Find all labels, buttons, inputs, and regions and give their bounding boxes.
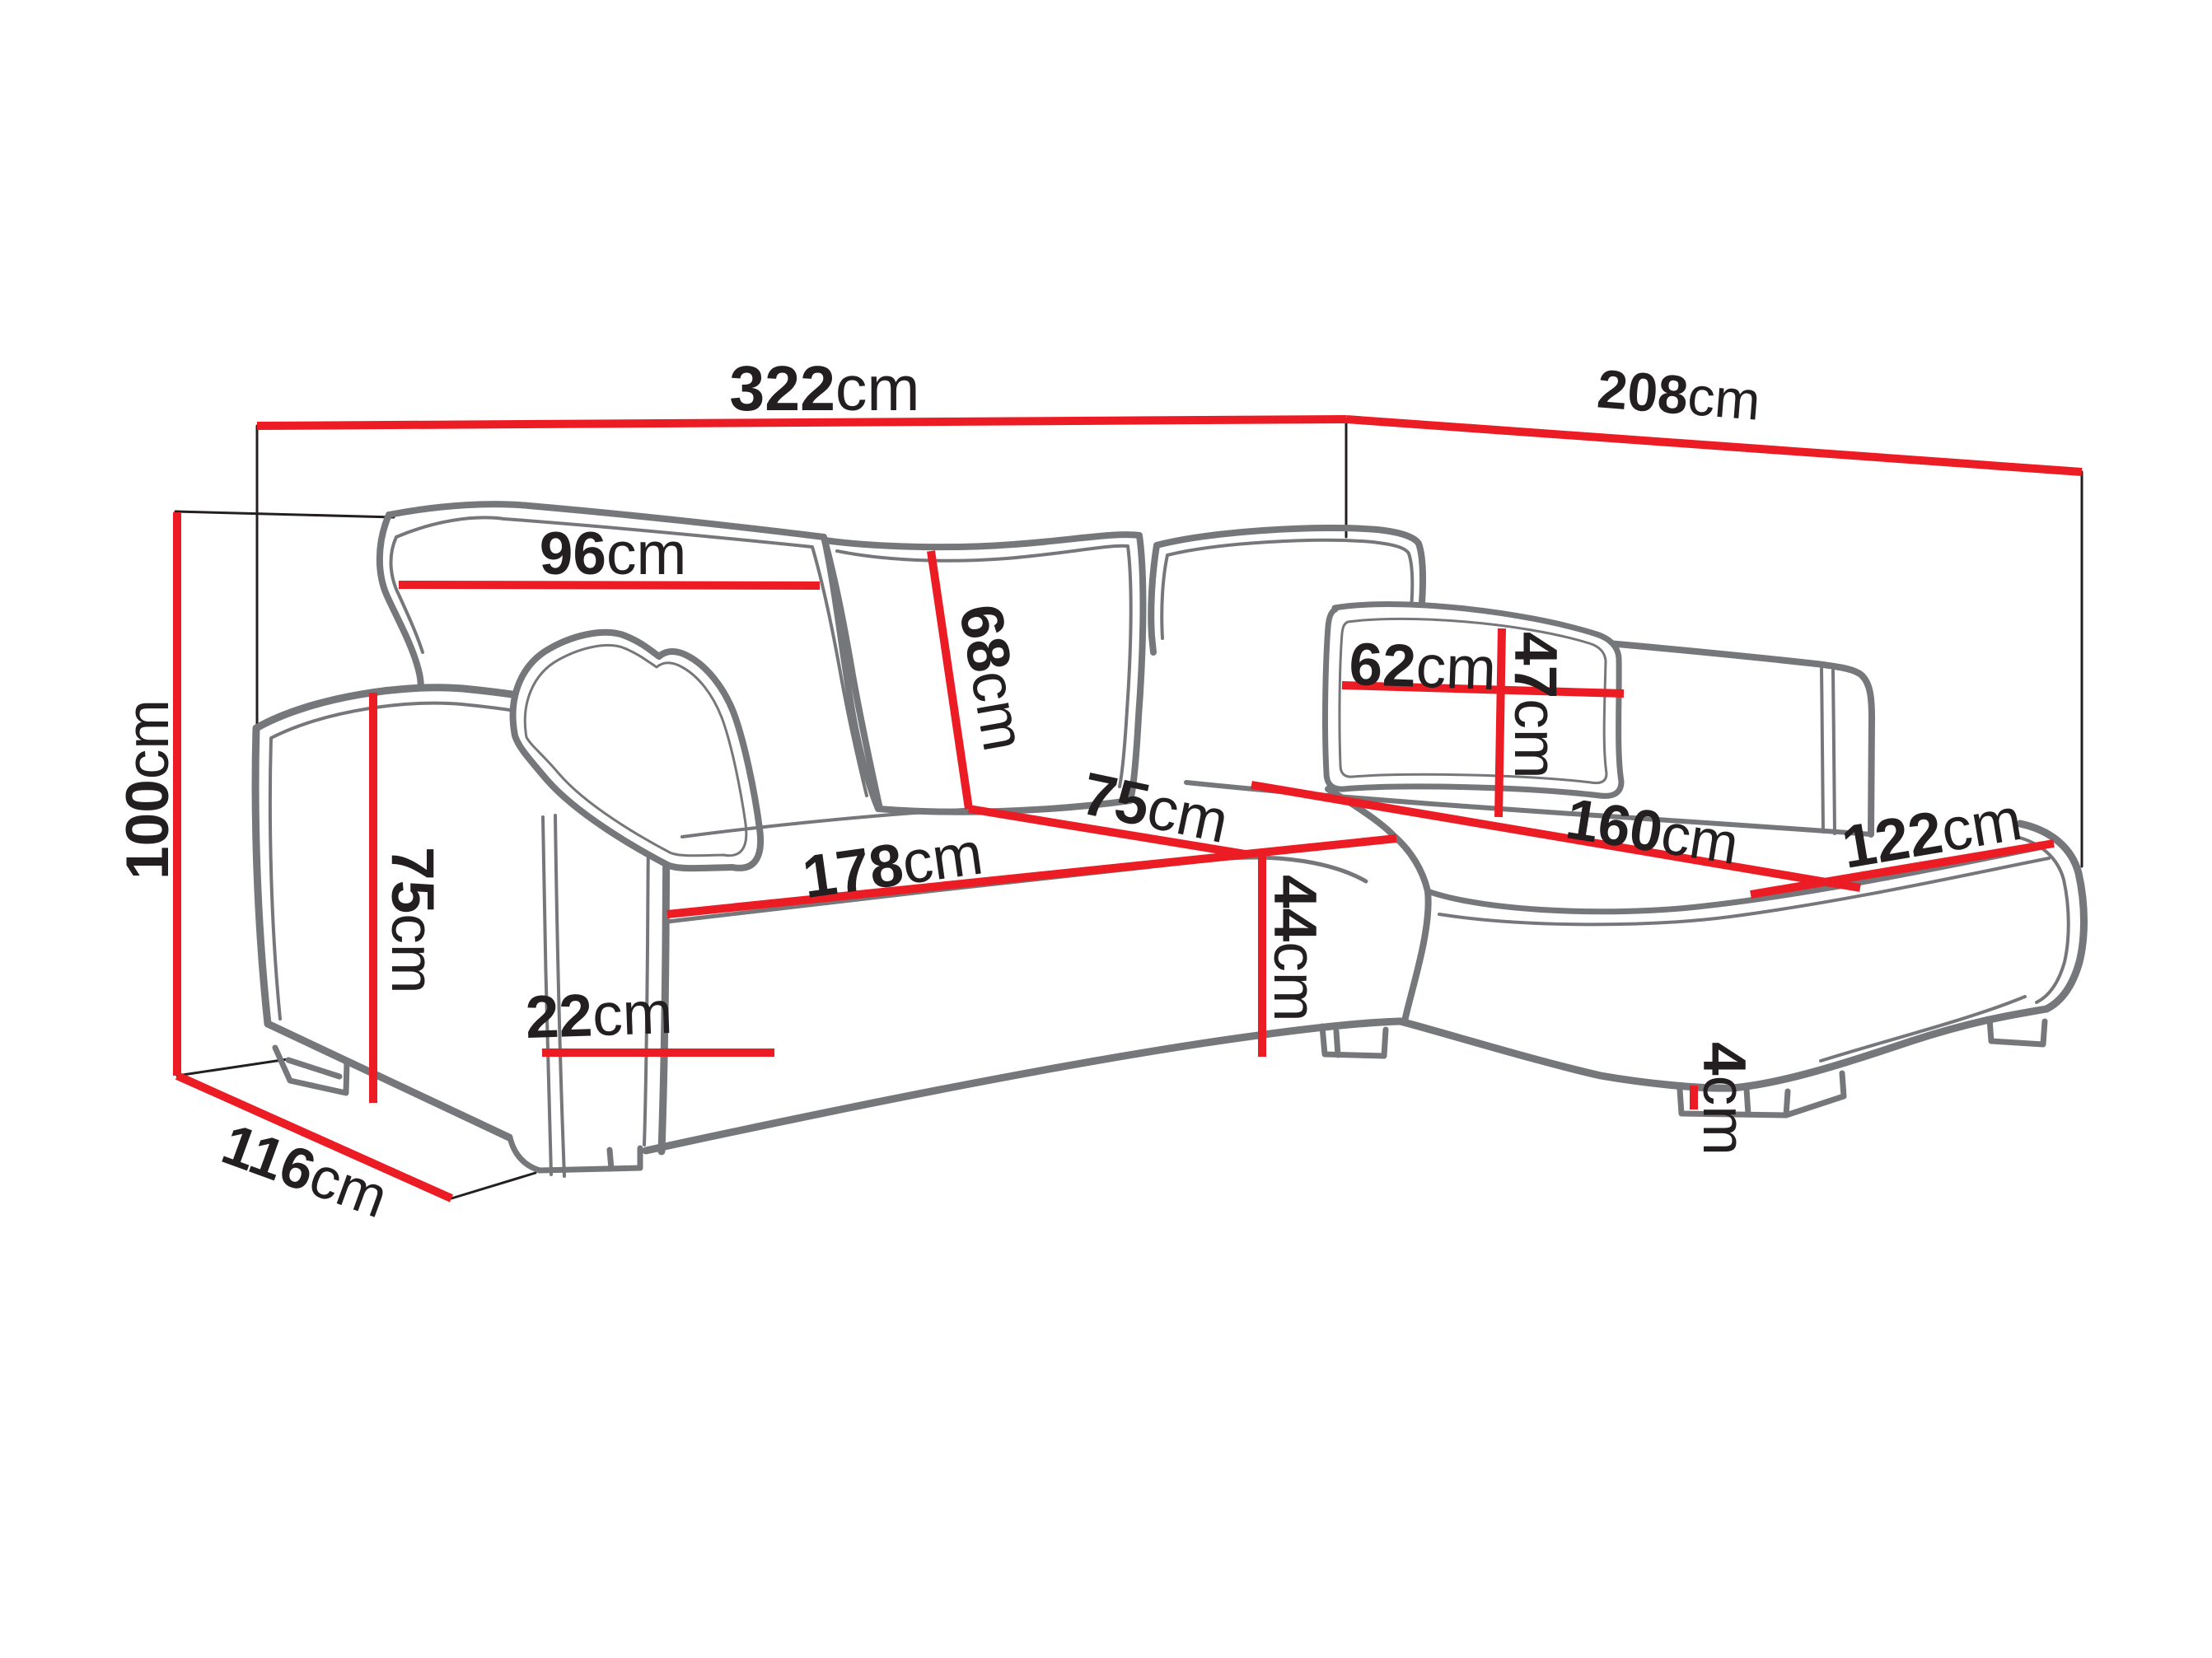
- svg-text:22cm: 22cm: [525, 979, 674, 1051]
- svg-text:96cm: 96cm: [540, 521, 687, 587]
- svg-text:44cm: 44cm: [1261, 875, 1328, 1022]
- svg-text:4cm: 4cm: [1691, 1042, 1757, 1156]
- svg-text:322cm: 322cm: [729, 353, 919, 424]
- svg-text:100cm: 100cm: [115, 699, 181, 880]
- svg-text:47cm: 47cm: [1502, 632, 1569, 779]
- svg-text:75cm: 75cm: [379, 847, 446, 994]
- svg-text:208cm: 208cm: [1595, 357, 1762, 431]
- svg-text:62cm: 62cm: [1348, 631, 1497, 703]
